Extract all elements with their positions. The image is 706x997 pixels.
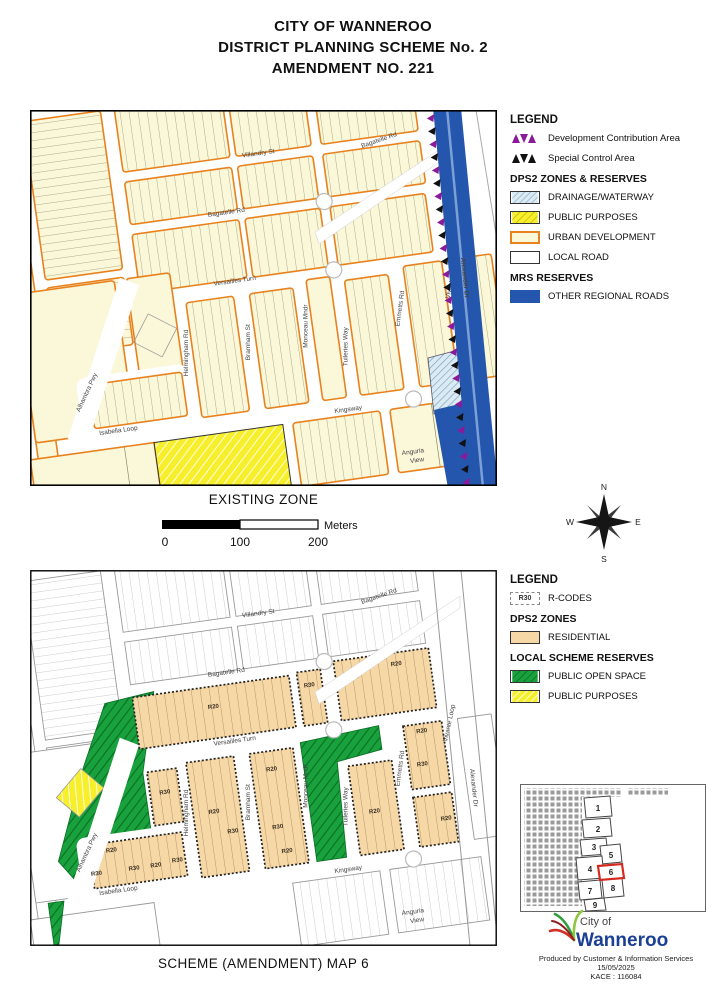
legend-item-label: PUBLIC PURPOSES	[548, 212, 638, 223]
compass-e: E	[635, 517, 641, 527]
map-ref: KACE : 116084	[528, 972, 704, 981]
compass-s: S	[601, 554, 607, 564]
legend-subheading: LOCAL SCHEME RESERVES	[510, 652, 706, 664]
locator-index-map: 1 2 3 4 5 6 7 8 9	[520, 784, 706, 912]
street-label-bramham: Bramham St	[245, 324, 252, 360]
legend-item-label: LOCAL ROAD	[548, 252, 609, 263]
street-label-tuileries: Tuileries Way	[343, 327, 350, 367]
legend-item-label: RESIDENTIAL	[548, 632, 610, 643]
street-label-helmingham: Helmingham Rd	[183, 789, 190, 836]
public-purposes-swatch	[510, 690, 540, 703]
scale-bar: 0 100 200 Meters	[158, 510, 368, 552]
legend-item-label: OTHER REGIONAL ROADS	[548, 291, 669, 302]
public-open-space-swatch	[510, 670, 540, 683]
legend-subheading: DPS2 ZONES & RESERVES	[510, 173, 706, 185]
existing-zone-caption: EXISTING ZONE	[30, 492, 497, 507]
local-road-swatch	[510, 251, 540, 264]
street-label-helmingham: Helmingham Rd	[183, 329, 190, 376]
legend-item-label: Development Contribution Area	[548, 133, 680, 144]
rcodes-chip: R30	[510, 592, 540, 605]
legend-item-label: PUBLIC PURPOSES	[548, 691, 638, 702]
svg-text:6: 6	[609, 868, 614, 877]
scale-unit: Meters	[324, 520, 358, 532]
legend-subheading: MRS RESERVES	[510, 272, 706, 284]
street-label-monceau: Monceau Mndr	[302, 304, 309, 348]
dca-symbol	[510, 132, 540, 145]
existing-zone-map: Villandry St Bagatelle Rd Versailles Tur…	[30, 110, 497, 486]
svg-text:7: 7	[588, 887, 593, 896]
title-line-1: CITY OF WANNEROO	[0, 16, 706, 37]
compass-w: W	[566, 517, 574, 527]
public-purposes-swatch	[510, 211, 540, 224]
title-line-3: AMENDMENT NO. 221	[0, 58, 706, 79]
planning-scheme-page: CITY OF WANNEROO DISTRICT PLANNING SCHEM…	[0, 0, 706, 997]
produced-by: Produced by Customer & Information Servi…	[528, 954, 704, 963]
existing-zone-legend: LEGEND Development Contribution Area Spe…	[510, 112, 706, 310]
drainage-swatch	[510, 191, 540, 204]
legend-item-label: R-CODES	[548, 593, 592, 604]
svg-text:1: 1	[596, 804, 601, 813]
svg-text:8: 8	[611, 884, 616, 893]
page-title: CITY OF WANNEROO DISTRICT PLANNING SCHEM…	[0, 16, 706, 79]
legend-item-label: URBAN DEVELOPMENT	[548, 232, 656, 243]
logo-wanneroo: Wanneroo	[576, 930, 668, 951]
legend-heading: LEGEND	[510, 574, 706, 586]
compass-n: N	[601, 482, 607, 492]
street-label-tuileries: Tuileries Way	[343, 787, 350, 827]
street-label-monceau: Monceau Mndr	[302, 764, 309, 808]
regional-roads-swatch	[510, 290, 540, 303]
scale-tick-200: 200	[308, 535, 328, 549]
svg-text:5: 5	[609, 851, 614, 860]
footer-credits: Produced by Customer & Information Servi…	[528, 954, 704, 981]
scale-tick-0: 0	[162, 535, 169, 549]
legend-item-label: Special Control Area	[548, 153, 635, 164]
svg-text:4: 4	[588, 865, 593, 874]
sca-symbol	[510, 152, 540, 165]
compass-rose: N S E W	[564, 478, 644, 570]
legend-item-label: DRAINAGE/WATERWAY	[548, 192, 654, 203]
urban-development-swatch	[510, 231, 540, 244]
street-label-bramham: Bramham St	[245, 784, 252, 820]
svg-text:2: 2	[596, 825, 601, 834]
legend-item-label: PUBLIC OPEN SPACE	[548, 671, 646, 682]
residential-swatch	[510, 631, 540, 644]
svg-text:3: 3	[592, 843, 597, 852]
scheme-map-caption: SCHEME (AMENDMENT) MAP 6	[30, 956, 497, 971]
title-line-2: DISTRICT PLANNING SCHEME No. 2	[0, 37, 706, 58]
map-date: 15/05/2025	[528, 963, 704, 972]
scheme-amendment-map: R20 R30 R30 R20 R20 R30 R20 R30 R20 R30 …	[30, 570, 497, 946]
logo-city-of: City of	[580, 916, 612, 928]
scheme-map-legend: LEGEND R30 R-CODES DPS2 ZONES RESIDENTIA…	[510, 572, 706, 710]
legend-heading: LEGEND	[510, 114, 706, 126]
legend-subheading: DPS2 ZONES	[510, 613, 706, 625]
wanneroo-logo: City of Wanneroo	[528, 908, 704, 956]
scale-tick-100: 100	[230, 535, 250, 549]
